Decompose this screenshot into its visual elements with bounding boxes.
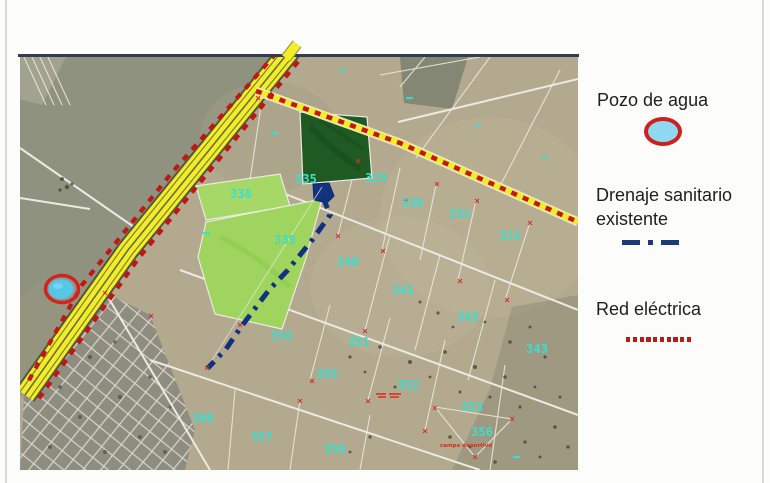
dash-dot-line-icon <box>622 240 679 245</box>
legend-label-drenaje-sanitario: Drenaje sanitario existente <box>596 183 741 231</box>
dot <box>660 337 664 342</box>
water-well-icon <box>644 117 682 146</box>
parcel-number: 330 <box>401 196 423 210</box>
dot <box>667 337 671 342</box>
dotted-line-icon <box>626 337 691 342</box>
satellite-map: 335 329 330 331 332 338 339 340 341 342 … <box>20 57 578 470</box>
parcel-number: 353 <box>461 400 483 414</box>
legend-label-red-electrica: Red eléctrica <box>596 297 701 321</box>
parcel-number: 338 <box>230 187 252 201</box>
parcel-number: 339 <box>274 233 296 247</box>
dot <box>633 337 637 342</box>
parcel-number: 331 <box>449 207 471 221</box>
parcel-number: 357 <box>251 430 273 444</box>
parcel-number: 335 <box>295 172 317 186</box>
parcel-number: 360 <box>192 411 214 425</box>
parcel-number: 341 <box>392 283 414 297</box>
parcel-number: 329 <box>365 171 387 185</box>
slide: 335 329 330 331 332 338 339 340 341 342 … <box>0 0 770 483</box>
parcel-number: 352 <box>397 378 419 392</box>
dot <box>680 337 684 342</box>
parcel-number: 355 <box>316 367 338 381</box>
dot-segment <box>648 240 653 245</box>
dash-segment <box>622 240 640 245</box>
campo-deportivo-label: campo deportivo <box>440 443 493 449</box>
parcel-number: 356 <box>471 425 493 439</box>
dot <box>640 337 644 342</box>
parcel-number: 351 <box>348 335 370 349</box>
left-frame-line <box>5 0 7 483</box>
parcel-number: 350 <box>270 329 292 343</box>
dash-segment <box>661 240 679 245</box>
dot <box>653 337 657 342</box>
dot <box>626 337 630 342</box>
parcel-number: 342 <box>457 310 479 324</box>
dot <box>646 337 650 342</box>
parcel-number: 340 <box>337 255 359 269</box>
parcel-number: 343 <box>526 342 548 356</box>
dot <box>673 337 677 342</box>
parcel-number: 332 <box>499 229 521 243</box>
right-frame-line <box>762 0 764 483</box>
parcel-number: 358 <box>324 442 346 456</box>
dot <box>687 337 691 342</box>
legend-label-pozo-de-agua: Pozo de agua <box>597 88 708 112</box>
map-canvas: 335 329 330 331 332 338 339 340 341 342 … <box>20 57 578 470</box>
